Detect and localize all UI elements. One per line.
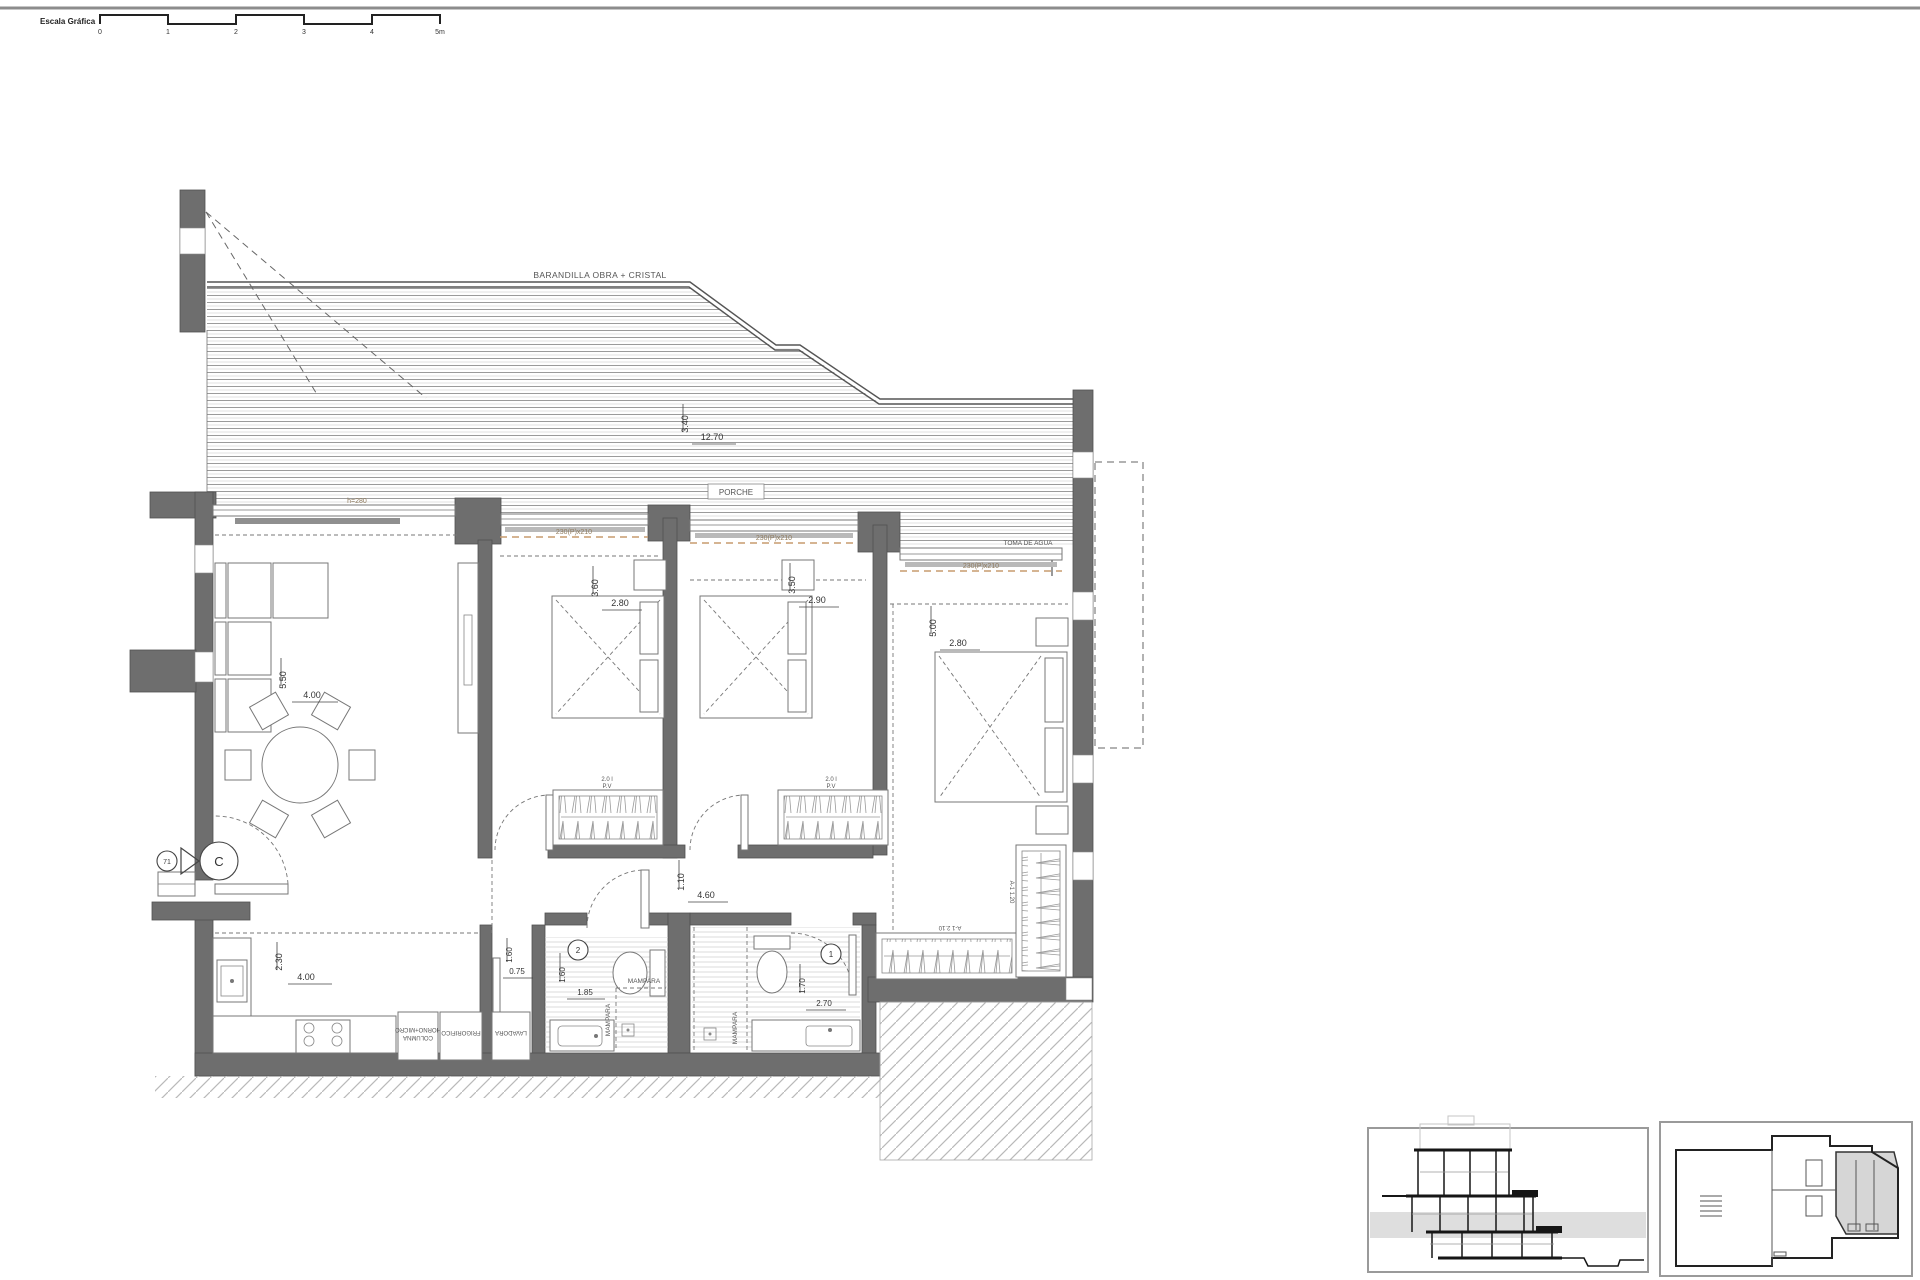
scale-tick-4: 4 — [370, 29, 374, 36]
terrace-dim-h: 12.70 — [701, 432, 724, 442]
wardrobe-label-1: 2.0 l — [825, 777, 836, 783]
tv-cabinet — [458, 563, 478, 733]
hall-dim-v: 1.10 — [676, 873, 686, 891]
window-bedroom1 — [501, 514, 648, 525]
bathroom1-screen-label: MAMPARA — [732, 1011, 739, 1044]
toilet-icon — [754, 936, 790, 993]
scale-label: Escala Gráfica — [40, 17, 96, 26]
wardrobe-bottom-label: A-1 2.10 — [938, 924, 961, 930]
bathroom2-dim-h: 1.85 — [577, 988, 593, 997]
upper-floor-projection — [1095, 462, 1143, 748]
scale-tick-1: 1 — [166, 29, 170, 36]
wall-bath1-top-left — [690, 913, 791, 925]
wall-master-bottom — [868, 977, 1092, 1002]
wall-bath2-top-left — [545, 913, 587, 925]
wardrobe — [778, 790, 888, 845]
bedroom-1: 2.0 l P.V 3.60 2.80 — [495, 556, 666, 850]
wall-terrace-stub — [180, 190, 205, 332]
wall-bottom-band — [195, 1053, 880, 1076]
section-marker-letter: C — [214, 854, 223, 869]
kitchen-dim-h: 4.00 — [297, 972, 315, 982]
bedroom-2: 2.0 l P.V 3.50 2.90 — [690, 560, 888, 850]
bathroom2-dim-v: 1.60 — [558, 967, 567, 983]
water-tap-label: TOMA DE AGUA — [1003, 540, 1053, 547]
wall-left-stub — [130, 650, 196, 692]
laundry-washer-label: LAVADORA — [495, 1029, 527, 1035]
laundry-closet: LAVADORA 1.60 0.75 — [492, 938, 533, 1060]
bedroom2-dim-h: 2.90 — [808, 595, 826, 605]
living-room: 5.50 4.00 — [215, 535, 492, 933]
bed — [935, 652, 1067, 802]
bathroom2-number: 2 — [576, 946, 581, 955]
wall-hall-top-right — [738, 845, 873, 858]
laundry-dim-v: 1.60 — [505, 947, 514, 963]
gap-left-2 — [195, 652, 213, 682]
entrance-door-leaf — [215, 884, 288, 894]
scale-bar — [100, 15, 440, 24]
kitchen-dim-v: 2.30 — [274, 953, 284, 971]
window-height-label: h=280 — [347, 498, 367, 505]
window-bedroom2 — [690, 520, 858, 531]
wall-laundry-bath2 — [532, 925, 545, 1073]
hatch-strip-bottom — [155, 1076, 885, 1098]
terrace-dim-v: 3.40 — [680, 415, 690, 433]
section-inset — [1368, 1116, 1648, 1272]
wall-bath2-bath1 — [668, 913, 690, 1053]
gap-corner-notch — [1066, 978, 1092, 1000]
gap-terrace-stub — [180, 228, 205, 254]
kitchen-column-label-1: COLUMNA — [403, 1034, 433, 1040]
kitchen-sink — [217, 960, 247, 1002]
bathroom2-screen-label-h: MAMPARA — [628, 978, 661, 985]
wall-entrance-block — [152, 902, 250, 920]
master-bedroom: A-1 2.10 A-1 1.20 5.00 2.80 — [876, 604, 1068, 979]
bathroom1-dim-v: 1.70 — [798, 978, 807, 994]
wardrobe-label-2: P.V — [827, 784, 836, 790]
scale-tick-0: 0 — [98, 29, 102, 36]
toilet-icon — [613, 950, 665, 996]
wardrobe-bottom — [876, 933, 1018, 979]
laundry-washer — [492, 1012, 530, 1060]
nightstand — [1036, 618, 1068, 646]
kitchen-hob — [296, 1020, 350, 1053]
wall-living-bed1 — [478, 540, 492, 858]
window-living — [213, 505, 455, 516]
bed — [552, 596, 664, 718]
wall-right — [1073, 390, 1093, 1002]
bedroom2-door-arc — [690, 795, 745, 850]
railing-label: BARANDILLA OBRA + CRISTAL — [533, 270, 666, 280]
section-marker-number: 71 — [163, 859, 171, 866]
laundry-dim-h: 0.75 — [509, 967, 525, 976]
wall-pillar-a — [455, 498, 501, 544]
wardrobe-label-2: P.V — [603, 784, 612, 790]
wall-left-lower — [195, 908, 213, 1076]
bathroom1-door-leaf — [849, 935, 856, 995]
window-label-1: 230(P)x210 — [556, 529, 592, 536]
window-living-leaf — [235, 518, 400, 524]
bed — [700, 596, 812, 718]
scale-tick-2: 2 — [234, 29, 238, 36]
key-plan-inset — [1660, 1122, 1912, 1276]
bedroom1-door-leaf — [546, 795, 553, 850]
bedroom2-door-leaf — [741, 795, 748, 850]
bedroom1-door-arc — [495, 795, 550, 850]
window-label-3: 230(P)x210 — [963, 563, 999, 570]
master-dim-h: 2.80 — [949, 638, 967, 648]
wardrobe-label-1: 2.0 l — [601, 777, 612, 783]
bathroom-1: MAMPARA 1 1.70 2.70 — [692, 927, 860, 1051]
wardrobe — [553, 790, 663, 845]
bathroom2-screen-label-v: MAMPARA — [605, 1003, 612, 1036]
gap-left-1 — [195, 545, 213, 573]
hatch-block-right — [880, 1002, 1092, 1160]
bedroom2-dim-v: 3.50 — [787, 576, 797, 594]
key-plan-highlighted-unit — [1836, 1152, 1898, 1234]
floor-plan-sheet: Escala Gráfica 0 1 2 3 4 5m BARANDILLA O… — [0, 0, 1920, 1280]
living-dim-v: 5.50 — [278, 671, 288, 689]
window-label-2: 230(P)x210 — [756, 535, 792, 542]
bathroom-2: 2 MAMPARA MAMPARA 1.60 1.85 — [545, 870, 668, 1051]
bathroom1-dim-h: 2.70 — [816, 999, 832, 1008]
kitchen-fridge-label: FRIGORIFICO — [441, 1029, 481, 1035]
living-dim-h: 4.00 — [303, 690, 321, 700]
wardrobe-side — [1016, 845, 1066, 977]
hall: 1.10 4.60 — [676, 860, 728, 902]
washbasin — [752, 1020, 860, 1051]
wall-hall-top-left — [548, 845, 685, 858]
kitchen: COLUMNA HORNO+MICRO FRIGORIFICO 2.30 4.0… — [213, 938, 482, 1060]
bedroom1-dim-h: 2.80 — [611, 598, 629, 608]
bathroom1-number: 1 — [829, 950, 834, 959]
kitchen-column-label-2: HORNO+MICRO — [395, 1026, 441, 1032]
bathroom2-door-leaf — [641, 870, 649, 928]
scale-tick-3: 3 — [302, 29, 306, 36]
porch-label: PORCHE — [719, 488, 753, 497]
kitchen-fridge — [440, 1012, 482, 1060]
nightstand — [1036, 806, 1068, 834]
graphic-scale-bar: Escala Gráfica 0 1 2 3 4 5m — [40, 15, 445, 36]
gap-right-3 — [1073, 755, 1093, 783]
wall-bath1-top-right — [853, 913, 876, 925]
hall-dim-h: 4.60 — [697, 890, 715, 900]
master-dim-v: 5.00 — [928, 619, 938, 637]
floor-plan-drawing: Escala Gráfica 0 1 2 3 4 5m BARANDILLA O… — [0, 0, 1920, 1280]
gap-right-2 — [1073, 592, 1093, 620]
bedroom1-dim-v: 3.60 — [590, 579, 600, 597]
gap-right-4 — [1073, 852, 1093, 880]
scale-tick-5: 5m — [435, 29, 445, 36]
wardrobe-side-label: A-1 1.20 — [1008, 881, 1014, 904]
nightstand — [634, 560, 666, 590]
bathroom2-door-arc — [587, 870, 645, 928]
gap-right-1 — [1073, 452, 1093, 478]
